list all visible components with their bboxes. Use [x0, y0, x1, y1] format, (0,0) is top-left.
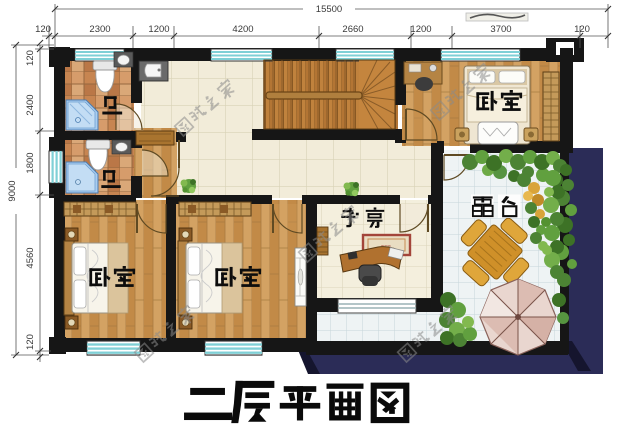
- svg-text:9000: 9000: [7, 180, 18, 201]
- svg-text:120: 120: [25, 334, 36, 350]
- svg-text:1200: 1200: [148, 24, 169, 35]
- svg-text:2660: 2660: [342, 24, 363, 35]
- svg-text:3700: 3700: [490, 24, 511, 35]
- svg-text:4200: 4200: [232, 24, 253, 35]
- svg-text:1200: 1200: [410, 24, 431, 35]
- svg-text:120: 120: [25, 50, 36, 66]
- svg-text:120: 120: [35, 24, 51, 35]
- svg-text:4560: 4560: [25, 247, 36, 268]
- svg-text:120: 120: [574, 24, 590, 35]
- svg-text:2400: 2400: [25, 94, 36, 115]
- svg-text:2300: 2300: [89, 24, 110, 35]
- svg-text:1800: 1800: [25, 152, 36, 173]
- svg-text:15500: 15500: [316, 4, 342, 15]
